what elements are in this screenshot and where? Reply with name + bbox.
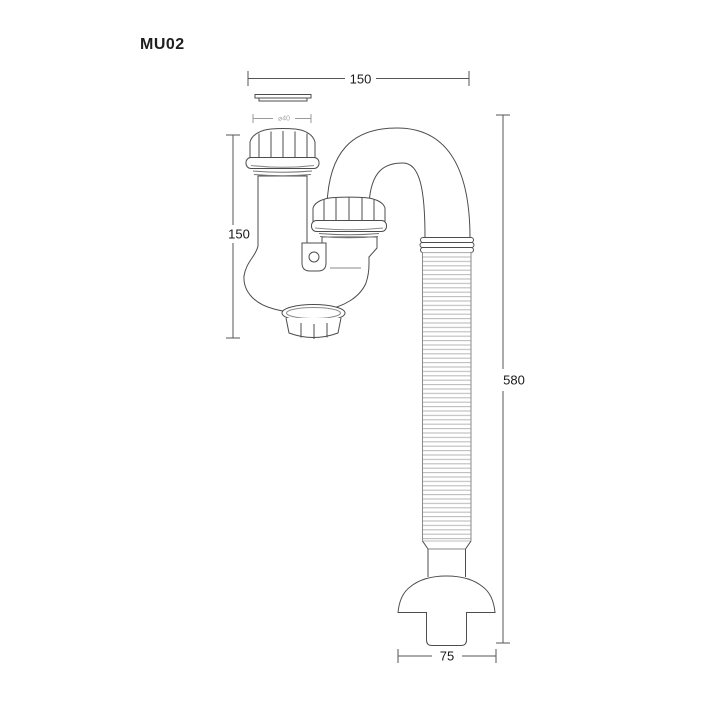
inlet-nut <box>246 128 319 175</box>
hose-collar <box>420 238 474 253</box>
bracket-hole <box>309 252 319 262</box>
dim-outlet-width: 75 <box>398 649 496 664</box>
outlet-tail-pipe <box>427 612 467 646</box>
hose-tail <box>428 549 466 577</box>
hose-corrugation <box>423 252 472 541</box>
product-drawing: ⌀40 <box>0 0 720 720</box>
trap-access-nut <box>282 305 345 340</box>
hose-taper <box>423 541 472 549</box>
dim-overall-height: 580 <box>496 115 525 643</box>
dim-inlet-height-label: 150 <box>228 227 250 242</box>
dim-outlet-width-label: 75 <box>440 649 454 664</box>
dim-inlet-diameter-label: ⌀40 <box>278 116 290 123</box>
swivel-nut <box>312 197 387 238</box>
dim-overall-height-label: 580 <box>503 373 525 388</box>
sink-plug-disc <box>255 95 311 102</box>
flexible-hose <box>420 238 474 578</box>
dim-top-width: 150 <box>248 71 469 87</box>
wall-bracket <box>302 243 326 271</box>
floor-cover-dome <box>398 576 495 613</box>
dim-inlet-diameter: ⌀40 <box>253 114 311 123</box>
technical-drawing-page: MU02 ⌀40 <box>0 0 720 720</box>
dim-top-width-label: 150 <box>350 72 372 87</box>
